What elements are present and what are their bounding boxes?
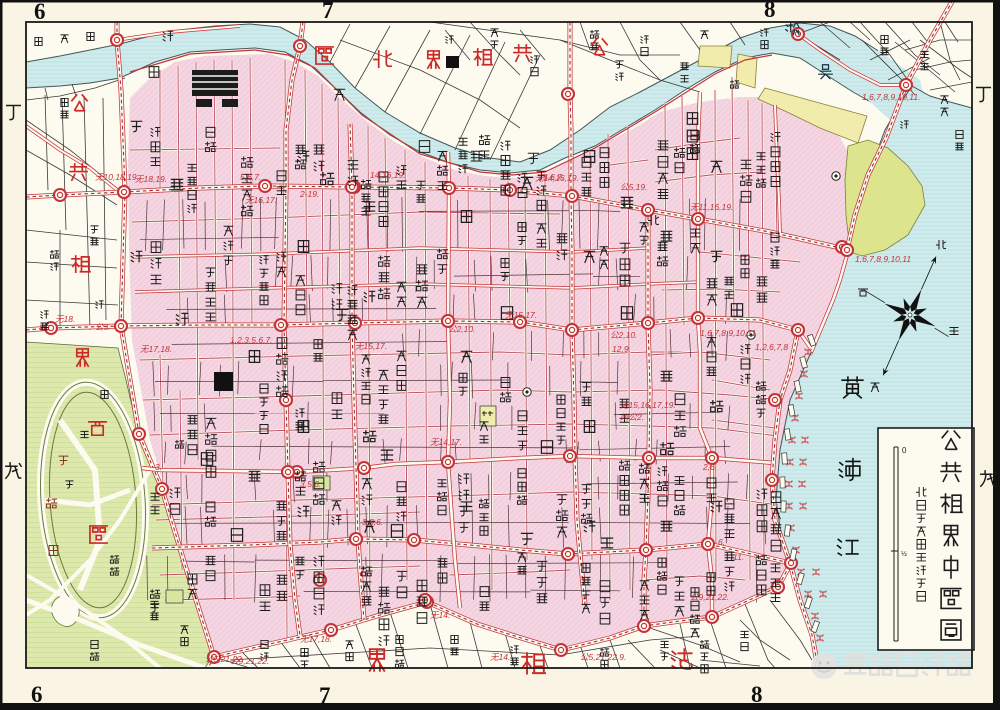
- svg-text:无15,17.: 无15,17.: [355, 341, 387, 351]
- svg-text:公9,21,22.: 公9,21,22.: [690, 592, 729, 602]
- svg-text:1,6,7,8,9,10,11: 1,6,7,8,9,10,11: [700, 328, 756, 338]
- svg-text:无15,16,17,19.: 无15,16,17,19.: [620, 400, 676, 410]
- svg-text:公5,21,22,9.: 公5,21,22,9.: [580, 652, 626, 662]
- svg-text:3,5,6.: 3,5,6.: [362, 517, 383, 527]
- svg-text:11.: 11.: [733, 552, 744, 562]
- svg-text:无18.: 无18.: [55, 314, 75, 324]
- svg-text:5,6,7.: 5,6,7.: [543, 172, 564, 182]
- svg-text:1,2,3,5,6,7.: 1,2,3,5,6,7.: [230, 335, 273, 345]
- svg-text:12,9.: 12,9.: [612, 344, 631, 354]
- svg-text:公2,10.: 公2,10.: [448, 324, 475, 334]
- svg-text:公2,10.: 公2,10.: [610, 330, 637, 340]
- svg-text:无14.: 无14.: [490, 652, 510, 662]
- svg-text:无14.: 无14.: [430, 610, 450, 620]
- svg-text:无11,16,19.: 无11,16,19.: [690, 202, 733, 212]
- svg-text:1,6,7,8,9,10,11.: 1,6,7,8,9,10,11.: [862, 92, 920, 102]
- svg-text:无17,18.: 无17,18.: [300, 634, 332, 644]
- svg-text:1,6,7,8,9,10,11: 1,6,7,8,9,10,11: [855, 254, 911, 264]
- svg-text:州公2.: 州公2.: [620, 412, 644, 422]
- svg-text:无14,17.: 无14,17.: [430, 437, 462, 447]
- svg-text:公5,19.: 公5,19.: [620, 182, 647, 192]
- svg-text:6.: 6.: [718, 537, 725, 547]
- svg-text:2-19.: 2-19.: [299, 189, 319, 199]
- svg-text:5,6,7.: 5,6,7.: [240, 172, 261, 182]
- svg-text:公5,21,22.: 公5,21,22.: [205, 654, 244, 664]
- svg-text:无15,17.: 无15,17.: [505, 310, 537, 320]
- svg-text:3,5,6.: 3,5,6.: [300, 479, 321, 489]
- svg-text:14,16,19.: 14,16,19.: [370, 170, 405, 180]
- svg-text:公3.: 公3.: [95, 322, 111, 332]
- svg-text:6: 6: [34, 0, 46, 24]
- svg-text:无18,19.: 无18,19.: [135, 174, 167, 184]
- svg-text:无16,17.: 无16,17.: [245, 195, 277, 205]
- svg-text:7: 7: [319, 683, 331, 708]
- svg-text:8: 8: [751, 682, 763, 707]
- svg-text:1,2,6,7,8: 1,2,6,7,8: [755, 342, 788, 352]
- svg-text:7: 7: [322, 0, 334, 23]
- svg-text:无17,18.: 无17,18.: [140, 344, 172, 354]
- svg-text:6: 6: [31, 682, 43, 707]
- svg-text:2,6.: 2,6.: [702, 462, 717, 472]
- svg-text:½: ½: [901, 550, 907, 558]
- svg-text:0: 0: [902, 446, 907, 455]
- svg-text:8: 8: [764, 0, 776, 22]
- svg-text:3.: 3.: [155, 462, 162, 472]
- svg-text:无10,18,19.: 无10,18,19.: [95, 172, 139, 182]
